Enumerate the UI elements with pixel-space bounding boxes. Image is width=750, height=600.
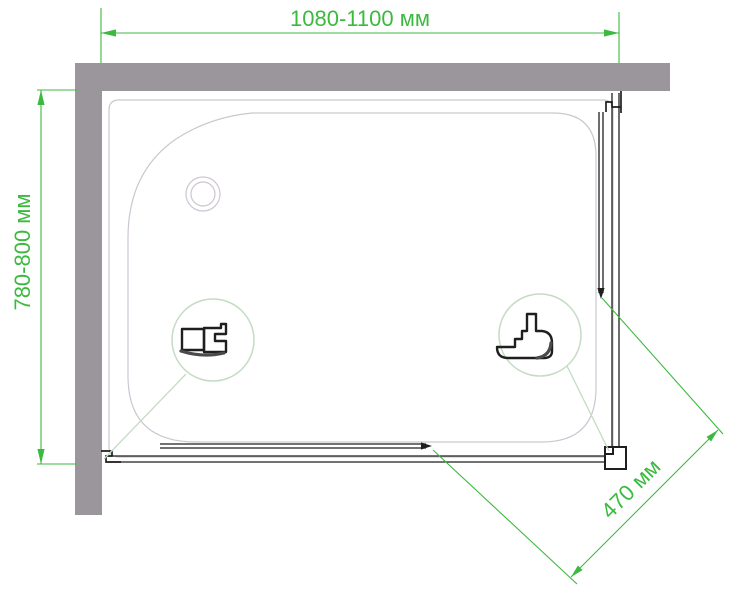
width-arrow-left [101,29,116,36]
tray-rim [109,100,613,457]
depth-arrow-bottom [37,449,44,464]
dimension-width: 1080-1100 мм [101,6,619,63]
detail-leader-left [104,374,186,459]
top-wall [75,63,670,91]
front-sliding-door [160,442,432,449]
tray-basin [128,113,596,442]
detail-callout-right [497,294,609,451]
technical-drawing-canvas: 1080-1100 мм 780-800 мм 470 мм [0,0,750,600]
right-sliding-door [597,112,604,299]
entry-ext-line-top [602,298,723,434]
entry-ext-line-bottom [433,450,577,584]
entry-dim-line [571,430,718,577]
front-door-edge-arrow [421,442,432,449]
detail-circle-left [172,299,254,381]
front-glass-panel [101,451,605,462]
right-door-edge-arrow [597,288,604,299]
shower-tray [109,100,613,457]
shower-enclosure-drawing: 1080-1100 мм 780-800 мм 470 мм [0,0,750,600]
width-arrow-right [604,29,619,36]
left-wall [75,63,102,515]
depth-dimension-label: 780-800 мм [10,193,35,310]
drain-inner [191,182,215,206]
detail-callout-left [104,299,254,459]
dimension-depth: 780-800 мм [10,90,77,464]
detail-circle-right [499,294,581,376]
width-dimension-label: 1080-1100 мм [290,6,430,31]
detail-leader-right [566,364,609,451]
walls [75,63,670,515]
depth-arrow-top [37,90,44,105]
